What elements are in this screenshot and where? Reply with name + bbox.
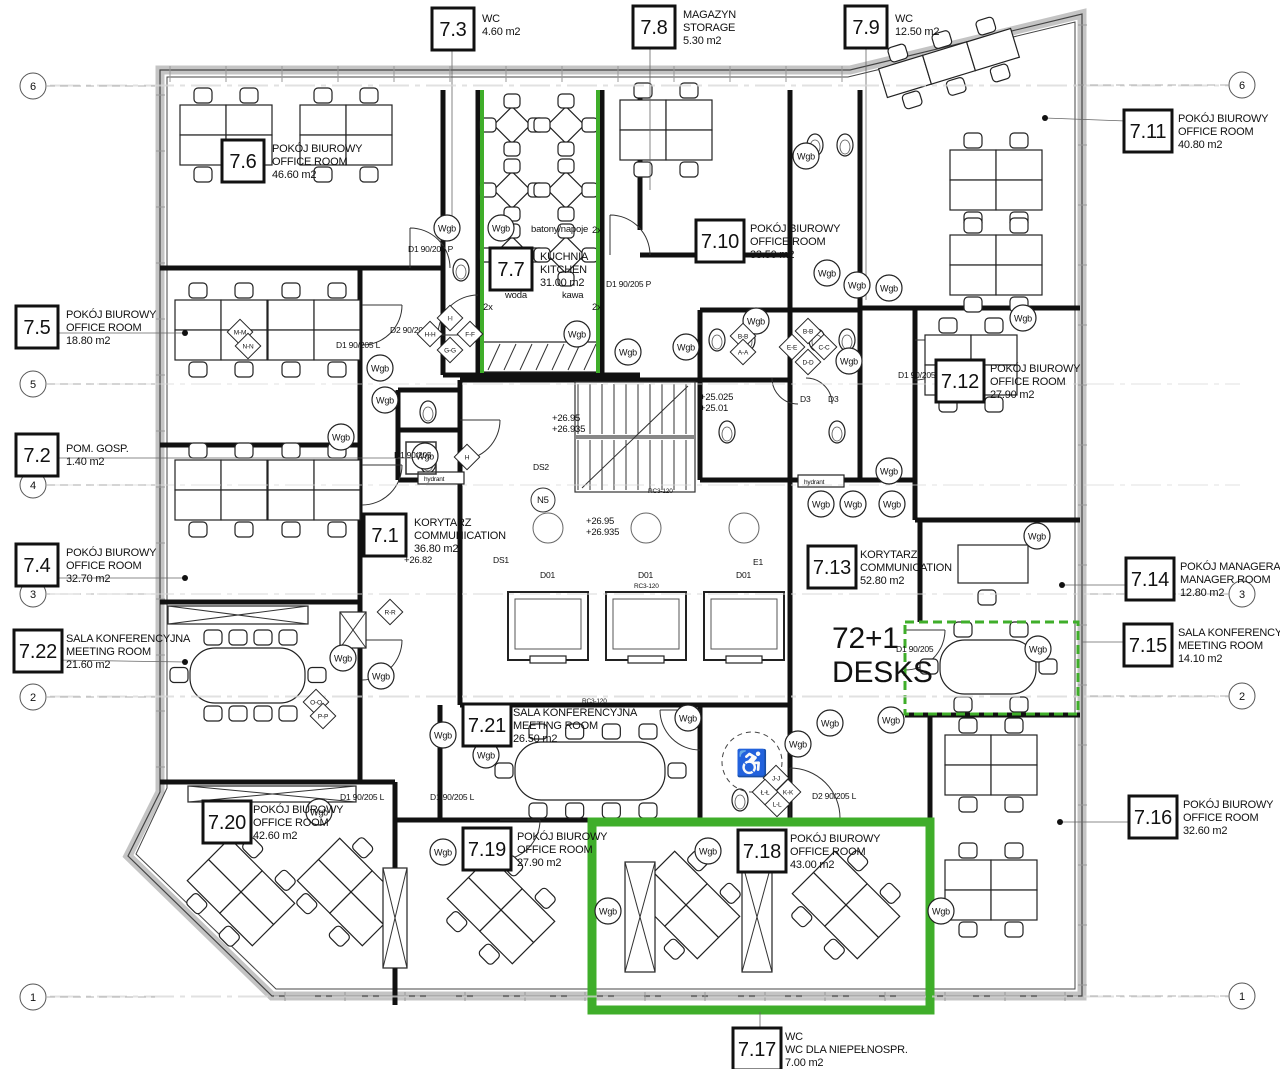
room-label-7.11: 7.11POKÓJ BIUROWYOFFICE ROOM40.80 m2 xyxy=(1124,110,1269,152)
annotation-tiny: RC3-120 xyxy=(648,488,673,495)
grid-number: 5 xyxy=(30,379,36,391)
wgb-marker: Wgb xyxy=(878,707,904,733)
room-number: 7.3 xyxy=(439,19,466,41)
svg-text:Wgb: Wgb xyxy=(818,269,836,279)
grid-number: 1 xyxy=(1239,991,1245,1003)
room-name-line: 32.60 m2 xyxy=(1183,825,1227,837)
svg-text:Wgb: Wgb xyxy=(880,467,898,477)
annotation-door: D1 90/205 xyxy=(394,450,432,460)
grid-number: 3 xyxy=(1239,589,1245,601)
room-label-7.4: 7.4POKÓJ BIUROWYOFFICE ROOM32.70 m2 xyxy=(16,544,157,586)
room-name-line: 14.10 m2 xyxy=(1178,653,1222,665)
annotation-elev: +26.935 xyxy=(552,424,585,435)
room-label-7.9: 7.9WC12.50 m2 xyxy=(845,6,939,48)
wgb-marker: Wgb xyxy=(879,491,905,517)
room-name-line: WC xyxy=(482,13,500,25)
grid-number: 1 xyxy=(30,992,36,1004)
annotation-door: D1 90/205 P xyxy=(408,244,454,254)
wgb-marker: Wgb xyxy=(876,458,902,484)
svg-text:B-B: B-B xyxy=(803,329,813,336)
annotation-small: 2x xyxy=(592,225,602,236)
svg-text:Wgb: Wgb xyxy=(699,847,717,857)
room-number: 7.18 xyxy=(743,841,781,863)
annotation-elev: +26.82 xyxy=(404,555,432,566)
annotation-door: D1 90/205 L xyxy=(336,340,381,350)
annotation-tiny: hydrant xyxy=(424,476,445,483)
room-number: 7.20 xyxy=(208,812,246,834)
room-name-line: POKÓJ BIUROWY xyxy=(1183,798,1274,811)
room-name-line: 12.50 m2 xyxy=(895,26,939,38)
annotation-small: 2x xyxy=(483,302,493,313)
room-name-line: SALA KONFERENCYJNA xyxy=(513,707,638,719)
wgb-marker: Wgb xyxy=(817,710,843,736)
wgb-marker: Wgb xyxy=(615,339,641,365)
room-name-line: POKÓJ BIUROWY xyxy=(1178,112,1269,125)
svg-text:Wgb: Wgb xyxy=(932,907,950,917)
wgb-marker: Wgb xyxy=(876,275,902,301)
svg-text:Wgb: Wgb xyxy=(434,731,452,741)
room-name-line: MEETING ROOM xyxy=(66,646,151,658)
room-name-line: KORYTARZ xyxy=(860,549,918,561)
annotation-door: D01 xyxy=(540,570,555,580)
svg-text:P-P: P-P xyxy=(318,714,328,721)
room-name-line: 40.80 m2 xyxy=(1178,139,1222,151)
room-name-line: WC DLA NIEPEŁNOSPR. xyxy=(785,1044,908,1056)
room-name-line: POKÓJ BIUROWY xyxy=(66,308,157,321)
wgb-marker: Wgb xyxy=(372,387,398,413)
room-name-line: 32.70 m2 xyxy=(66,573,110,585)
wgb-marker: Wgb xyxy=(430,722,456,748)
svg-text:Wgb: Wgb xyxy=(371,364,389,374)
wgb-marker: Wgb xyxy=(330,645,356,671)
room-name-line: OFFICE ROOM xyxy=(1183,812,1258,824)
wgb-marker: Wgb xyxy=(928,898,954,924)
annotation-tiny: RC3-120 xyxy=(634,583,659,590)
svg-text:Wgb: Wgb xyxy=(1029,645,1047,655)
room-name-line: OFFICE ROOM xyxy=(790,846,865,858)
room-number: 7.2 xyxy=(23,445,50,467)
svg-text:Wgb: Wgb xyxy=(844,500,862,510)
room-name-line: OFFICE ROOM xyxy=(253,817,328,829)
room-name-line: POM. GOSP. xyxy=(66,443,129,455)
room-name-line: 1.40 m2 xyxy=(66,456,104,468)
floor-plan-page: { "drawing": { "colors": { "highlight": … xyxy=(0,0,1280,1069)
room-name-line: POKÓJ BIUROWY xyxy=(790,832,881,845)
svg-text:J-J: J-J xyxy=(772,776,780,783)
svg-text:Wgb: Wgb xyxy=(334,654,352,664)
svg-text:Wgb: Wgb xyxy=(438,224,456,234)
room-name-line: POKÓJ BIUROWY xyxy=(272,142,363,155)
room-name-line: 18.80 m2 xyxy=(66,335,110,347)
wgb-marker: Wgb xyxy=(367,355,393,381)
room-number: 7.9 xyxy=(852,17,879,39)
room-label-7.2: 7.2POM. GOSP.1.40 m2 xyxy=(16,434,129,476)
svg-text:Wgb: Wgb xyxy=(840,357,858,367)
room-name-line: 21.60 m2 xyxy=(66,659,110,671)
wgb-marker: Wgb xyxy=(844,272,870,298)
room-label-7.8: 7.8MAGAZYNSTORAGE5.30 m2 xyxy=(633,6,736,48)
wgb-marker: Wgb xyxy=(1025,636,1051,662)
annotation-small: 2x xyxy=(592,302,602,313)
room-name-line: POKÓJ BIUROWY xyxy=(66,546,157,559)
room-name-line: SALA KONFERENCYJNA xyxy=(1178,627,1280,639)
annotation-door: DS1 xyxy=(493,555,509,565)
wgb-marker: Wgb xyxy=(430,839,456,865)
room-label-7.16: 7.16POKÓJ BIUROWYOFFICE ROOM32.60 m2 xyxy=(1129,796,1274,838)
room-name-line: SALA KONFERENCYJNA xyxy=(66,633,191,645)
svg-text:R-R: R-R xyxy=(385,610,396,617)
annotation-door: D1 90/205 L xyxy=(430,792,475,802)
wgb-marker: Wgb xyxy=(814,260,840,286)
annotation-door: D2 90/205 L xyxy=(812,791,857,801)
room-name-line: OFFICE ROOM xyxy=(990,376,1065,388)
floor-plan-canvas: ♿ 6543216321 WgbWgbWgbWgbWgbWgbWgbWgbWgb… xyxy=(0,0,1280,1069)
room-name-line: 31.00 m2 xyxy=(540,277,584,289)
wgb-marker: Wgb xyxy=(328,424,354,450)
annotation-door: D3 xyxy=(800,394,811,404)
room-number: 7.6 xyxy=(229,151,256,173)
room-name-line: COMMUNICATION xyxy=(860,562,952,574)
stairs xyxy=(575,382,695,492)
room-name-line: 33.50 m2 xyxy=(750,249,794,261)
annotation-elev: +26.95 xyxy=(552,413,580,424)
svg-text:Wgb: Wgb xyxy=(1014,314,1032,324)
annotation-elev: +26.935 xyxy=(586,527,619,538)
svg-text:Wgb: Wgb xyxy=(568,330,586,340)
room-number: 7.5 xyxy=(23,317,50,339)
annotation-door: E1 xyxy=(753,557,763,567)
wgb-marker: Wgb xyxy=(1010,305,1036,331)
room-name-line: POKÓJ BIUROWY xyxy=(990,362,1081,375)
room-name-line: POKÓJ BIUROWY xyxy=(750,222,841,235)
room-label-7.12: 7.12POKÓJ BIUROWYOFFICE ROOM27.90 m2 xyxy=(936,360,1081,402)
room-name-line: POKÓJ BIUROWY xyxy=(517,830,608,843)
room-name-line: 46.60 m2 xyxy=(272,169,316,181)
room-name-line: STORAGE xyxy=(683,22,735,34)
annotation-door: D01 xyxy=(638,570,653,580)
room-number: 7.16 xyxy=(1134,807,1172,829)
annotation-door: DS2 xyxy=(533,462,549,472)
svg-text:Wgb: Wgb xyxy=(812,500,830,510)
room-name-line: MEETING ROOM xyxy=(1178,640,1263,652)
room-name-line: 5.30 m2 xyxy=(683,35,721,47)
grid-number: 4 xyxy=(30,480,36,492)
annotation-door: D01 xyxy=(736,570,751,580)
room-number: 7.8 xyxy=(640,17,667,39)
svg-text:F-F: F-F xyxy=(465,332,475,339)
svg-text:K-K: K-K xyxy=(783,790,794,797)
svg-text:Wgb: Wgb xyxy=(332,433,350,443)
svg-text:Wgb: Wgb xyxy=(477,751,495,761)
wgb-marker: Wgb xyxy=(695,838,721,864)
room-number: 7.7 xyxy=(497,259,524,281)
room-label-7.15: 7.15SALA KONFERENCYJNAMEETING ROOM14.10 … xyxy=(1124,624,1280,666)
room-label-7.20: 7.20POKÓJ BIUROWYOFFICE ROOM42.60 m2 xyxy=(203,801,344,843)
svg-text:Wgb: Wgb xyxy=(619,348,637,358)
svg-text:M-M: M-M xyxy=(234,330,246,337)
annotation-door: D1 90/205 P xyxy=(606,279,652,289)
svg-text:E-E: E-E xyxy=(787,345,798,352)
svg-text:Wgb: Wgb xyxy=(599,907,617,917)
room-label-7.10: 7.10POKÓJ BIUROWYOFFICE ROOM33.50 m2 xyxy=(696,220,841,262)
svg-text:I-I: I-I xyxy=(447,316,453,323)
svg-text:Wgb: Wgb xyxy=(882,716,900,726)
wgb-marker: Wgb xyxy=(434,215,460,241)
room-label-7.1: 7.1KORYTARZCOMMUNICATION36.80 m2 xyxy=(364,514,506,556)
room-name-line: 36.80 m2 xyxy=(414,543,458,555)
room-name-line: 7.00 m2 xyxy=(785,1057,823,1069)
wgb-marker: Wgb xyxy=(1024,523,1050,549)
room-number: 7.12 xyxy=(941,371,979,393)
room-label-7.5: 7.5POKÓJ BIUROWYOFFICE ROOM18.80 m2 xyxy=(16,306,157,348)
room-number: 7.11 xyxy=(1130,121,1167,143)
room-label-7.3: 7.3WC4.60 m2 xyxy=(432,8,520,50)
room-name-line: POKÓJ MANAGERA xyxy=(1180,560,1280,573)
svg-text:Wgb: Wgb xyxy=(376,396,394,406)
grid-number: 2 xyxy=(30,692,36,704)
room-label-7.17: 7.17WCWC DLA NIEPEŁNOSPR.7.00 m2 xyxy=(733,1028,908,1069)
svg-text:Wgb: Wgb xyxy=(848,281,866,291)
annotation-elev: +25.01 xyxy=(700,403,728,414)
room-name-line: COMMUNICATION xyxy=(414,530,506,542)
wgb-marker: Wgb xyxy=(673,334,699,360)
room-name-line: 26.50 m2 xyxy=(513,733,557,745)
room-name-line: OFFICE ROOM xyxy=(1178,126,1253,138)
annotation-small: batony/napoje xyxy=(531,224,588,235)
svg-text:♿: ♿ xyxy=(736,748,768,778)
svg-text:Wgb: Wgb xyxy=(679,714,697,724)
svg-text:L-L: L-L xyxy=(773,802,782,809)
svg-text:H-H: H-H xyxy=(425,332,436,339)
room-number: 7.1 xyxy=(371,525,398,547)
room-name-line: OFFICE ROOM xyxy=(66,322,141,334)
room-number: 7.14 xyxy=(1131,569,1169,591)
room-name-line: WC xyxy=(785,1031,803,1043)
wgb-marker: Wgb xyxy=(488,215,514,241)
room-label-7.7: 7.7KUCHNIAKITCHEN31.00 m2 xyxy=(490,248,589,290)
room-name-line: 43.00 m2 xyxy=(790,859,834,871)
annotation-door: D1 90/205 xyxy=(896,644,934,654)
svg-text:G-G: G-G xyxy=(444,348,456,355)
svg-text:Wgb: Wgb xyxy=(677,343,695,353)
svg-text:Wgb: Wgb xyxy=(434,848,452,858)
room-number: 7.15 xyxy=(1129,635,1167,657)
grid-marker-right-1: 1 xyxy=(50,983,1255,1009)
room-label-7.13: 7.13KORYTARZCOMMUNICATION52.80 m2 xyxy=(808,546,952,588)
wgb-marker: Wgb xyxy=(595,898,621,924)
svg-text:Wgb: Wgb xyxy=(1028,532,1046,542)
desk-count-note: 72+1DESKS xyxy=(832,622,933,689)
room-number: 7.22 xyxy=(19,641,57,663)
room-number: 7.19 xyxy=(468,839,506,861)
room-name-line: 42.60 m2 xyxy=(253,830,297,842)
svg-text:C-C: C-C xyxy=(819,345,830,352)
svg-text:Wgb: Wgb xyxy=(797,152,815,162)
wgb-marker: Wgb xyxy=(793,143,819,169)
room-label-7.14: 7.14POKÓJ MANAGERAMANAGER ROOM12.80 m2 xyxy=(1126,558,1280,600)
wgb-marker: Wgb xyxy=(836,348,862,374)
room-name-line: 4.60 m2 xyxy=(482,26,520,38)
room-label-7.6: 7.6POKÓJ BIUROWYOFFICE ROOM46.60 m2 xyxy=(222,140,363,182)
room-number: 7.13 xyxy=(813,557,851,579)
svg-text:Wgb: Wgb xyxy=(821,719,839,729)
wgb-marker: Wgb xyxy=(808,491,834,517)
wgb-marker: Wgb xyxy=(785,731,811,757)
section-mark: R-R xyxy=(377,599,402,624)
room-name-line: 12.80 m2 xyxy=(1180,587,1224,599)
annotation-door: D3 xyxy=(828,394,839,404)
room-number: 7.21 xyxy=(468,715,506,737)
room-name-line: MAGAZYN xyxy=(683,9,736,21)
annotation-small: woda xyxy=(504,290,528,301)
annotation-elev: +25.025 xyxy=(700,392,733,403)
room-name-line: MANAGER ROOM xyxy=(1180,574,1271,586)
svg-text:A-A: A-A xyxy=(738,350,749,357)
annotation-elev: +26.95 xyxy=(586,516,614,527)
grid-number: 6 xyxy=(30,81,36,93)
room-name-line: MEETING ROOM xyxy=(513,720,598,732)
room-name-line: 52.80 m2 xyxy=(860,575,904,587)
room-name-line: OFFICE ROOM xyxy=(517,844,592,856)
room-name-line: 27.90 m2 xyxy=(990,389,1034,401)
room-name-line: POKÓJ BIUROWY xyxy=(253,803,344,816)
desk-count-line2: DESKS xyxy=(832,656,933,689)
grid-number: 2 xyxy=(1239,691,1245,703)
wgb-marker: Wgb xyxy=(368,663,394,689)
grid-number: 6 xyxy=(1239,80,1245,92)
svg-text:H: H xyxy=(465,455,470,462)
grid-number: 3 xyxy=(30,589,36,601)
svg-text:Ł-Ł: Ł-Ł xyxy=(761,790,770,797)
room-name-line: 27.90 m2 xyxy=(517,857,561,869)
room-name-line: KUCHNIA xyxy=(540,251,589,263)
room-name-line: OFFICE ROOM xyxy=(272,156,347,168)
wgb-marker: Wgb xyxy=(564,321,590,347)
svg-text:Wgb: Wgb xyxy=(883,500,901,510)
svg-text:D-D: D-D xyxy=(803,360,814,367)
annotation-tiny: RC3-120 xyxy=(582,698,607,705)
room-name-line: KITCHEN xyxy=(540,264,587,276)
annotation-small: kawa xyxy=(562,290,584,301)
svg-text:Wgb: Wgb xyxy=(372,672,390,682)
svg-text:Wgb: Wgb xyxy=(880,284,898,294)
wgb-marker: Wgb xyxy=(840,491,866,517)
svg-text:N-N: N-N xyxy=(243,344,254,351)
room-number: 7.10 xyxy=(701,231,739,253)
desk-count-line1: 72+1 xyxy=(832,622,899,655)
room-name-line: OFFICE ROOM xyxy=(66,560,141,572)
annotation-tiny: hydrant xyxy=(804,479,825,486)
room-name-line: OFFICE ROOM xyxy=(750,236,825,248)
svg-text:Wgb: Wgb xyxy=(789,740,807,750)
room-name-line: WC xyxy=(895,13,913,25)
wgb-marker: Wgb xyxy=(675,705,701,731)
room-label-7.19: 7.19POKÓJ BIUROWYOFFICE ROOM27.90 m2 xyxy=(463,828,608,870)
room-name-line: KORYTARZ xyxy=(414,517,472,529)
room-number: 7.4 xyxy=(23,555,50,577)
svg-text:Wgb: Wgb xyxy=(747,317,765,327)
annotation-small: N5 xyxy=(537,495,549,506)
annotation-door: D1 90/205 L xyxy=(340,792,385,802)
room-number: 7.17 xyxy=(738,1039,776,1061)
svg-text:Wgb: Wgb xyxy=(492,224,510,234)
